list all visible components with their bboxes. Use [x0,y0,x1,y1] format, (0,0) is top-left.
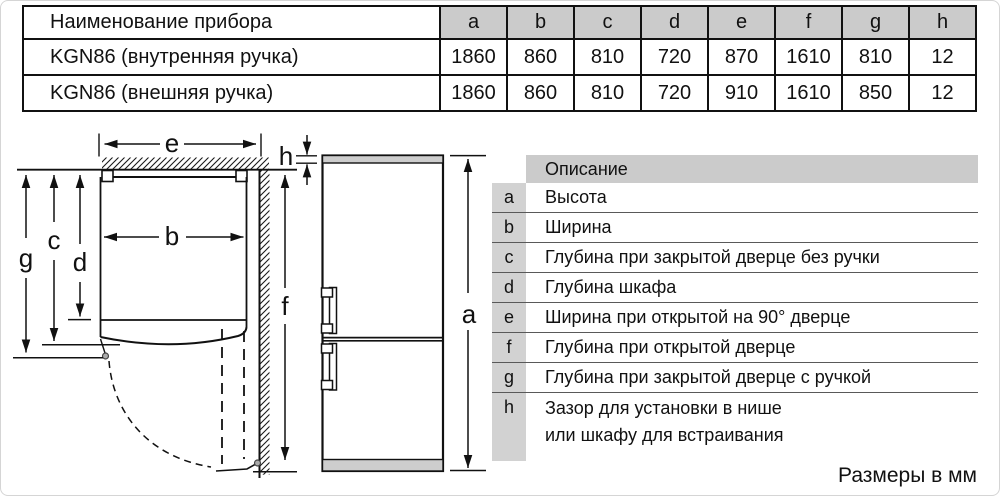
value-cell: 720 [641,75,708,111]
side-wall-hatch [260,170,270,475]
col-header-c: c [574,6,641,39]
col-header-d: d [641,6,708,39]
legend-row-c: c Глубина при закрытой дверце без ручки [492,243,978,273]
legend-desc: Ширина [526,213,978,242]
niche-walls [17,158,297,479]
dim-g: g [13,175,103,358]
table-row: KGN86 (внешняя ручка) 1860 860 810 720 9… [23,75,976,111]
col-header-a: a [440,6,507,39]
legend-desc: Зазор для установки в нише или шкафу для… [526,393,978,461]
value-cell: 860 [507,75,574,111]
fridge-base-strip [323,460,444,472]
door-swing-arc [109,361,211,467]
legend-desc: Глубина при открытой дверце [526,333,978,362]
legend-row-h: h Зазор для установки в нише или шкафу д… [492,393,978,461]
door-hinge-pivot [255,460,261,466]
col-header-name: Наименование прибора [23,6,440,39]
col-header-h: h [909,6,976,39]
door-front-curve [101,327,247,344]
value-cell: 1610 [775,39,842,75]
col-header-f: f [775,6,842,39]
dimension-label-f: f [281,291,289,321]
hinge-block-right [236,171,247,182]
value-cell: 720 [641,39,708,75]
dimension-label-h: h [279,141,293,171]
value-cell: 1860 [440,75,507,111]
legend-row-b: b Ширина [492,213,978,243]
legend-desc: Ширина при открытой на 90° дверце [526,303,978,332]
legend-desc: Глубина при закрытой дверце без ручки [526,243,978,272]
value-cell: 870 [708,39,775,75]
model-name: KGN86 (внутренняя ручка) [23,39,440,75]
top-view [101,171,261,472]
handle-link-line [101,339,106,353]
legend-row-a: a Высота [492,183,978,213]
dimension-label-b: b [165,221,179,251]
legend-desc-line2: или шкафу для встраивания [545,422,978,449]
value-cell: 12 [909,39,976,75]
dim-b: b [104,221,244,251]
dimensions-table: Наименование прибора a b c d e f g h KGN… [22,5,977,112]
col-header-b: b [507,6,574,39]
value-cell: 1610 [775,75,842,111]
legend-desc: Глубина при закрытой дверце с ручкой [526,363,978,392]
dimension-label-c: c [48,225,61,255]
legend-header-row: Описание [492,155,978,183]
legend-desc: Высота [526,183,978,212]
open-door-bottom [216,465,255,472]
dimension-label-g: g [19,243,33,273]
units-note: Размеры в мм [838,464,977,488]
legend-row-g: g Глубина при закрытой дверце с ручкой [492,363,978,393]
value-cell: 810 [574,39,641,75]
table-row: KGN86 (внутренняя ручка) 1860 860 810 72… [23,39,976,75]
fridge-body [323,156,444,472]
installation-drawing: e h b g c d f [0,125,500,496]
col-header-g: g [842,6,909,39]
door-corner-pivot [103,353,109,359]
dim-a: a [450,156,486,471]
legend-table: Описание a Высота b Ширина c Глубина при… [492,155,978,461]
dimension-label-d: d [73,247,87,277]
legend-desc: Глубина шкафа [526,273,978,302]
legend-row-d: d Глубина шкафа [492,273,978,303]
value-cell: 850 [842,75,909,111]
ceiling-hatch [102,158,269,170]
dim-d: d [68,175,91,320]
value-cell: 860 [507,39,574,75]
value-cell: 910 [708,75,775,111]
model-name: KGN86 (внешняя ручка) [23,75,440,111]
value-cell: 1860 [440,39,507,75]
legend-desc-line1: Зазор для установки в нише [545,395,978,422]
legend-row-f: f Глубина при открытой дверце [492,333,978,363]
value-cell: 12 [909,75,976,111]
dimensions-table-header-row: Наименование прибора a b c d e f g h [23,6,976,39]
fridge-top-strip [323,156,444,164]
dimension-label-a: a [462,299,477,329]
value-cell: 810 [574,75,641,111]
col-header-e: e [708,6,775,39]
dim-e: e [99,128,261,158]
dimension-label-e: e [165,128,179,158]
value-cell: 810 [842,39,909,75]
legend-header-title: Описание [526,155,978,183]
hinge-block-left [102,171,113,182]
front-view [322,156,444,472]
legend-row-e: e Ширина при открытой на 90° дверце [492,303,978,333]
